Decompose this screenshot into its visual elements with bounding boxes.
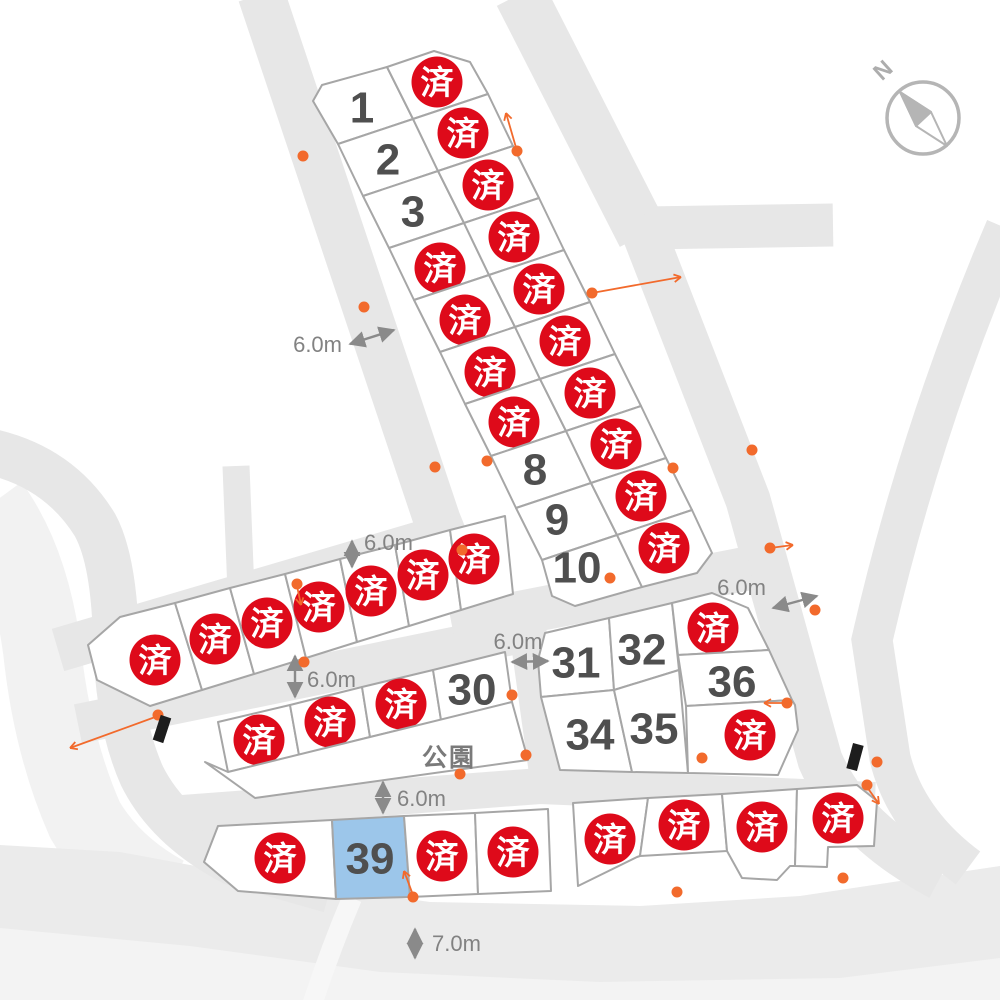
- sold-badge-label: 済: [600, 426, 634, 463]
- sold-badge-label: 済: [574, 375, 608, 412]
- dimension-label: 6.0m: [717, 575, 766, 600]
- sold-badge-label: 済: [549, 323, 583, 360]
- dimension-label: 6.0m: [364, 530, 413, 555]
- sold-badge-label: 済: [523, 271, 557, 308]
- sold-badge-label: 済: [498, 219, 532, 256]
- lot-number-label: 36: [708, 657, 757, 706]
- sold-badge-label: 済: [447, 115, 481, 152]
- sold-badge-label: 済: [243, 722, 277, 759]
- lot-number-label: 32: [618, 625, 667, 674]
- dimension-label: 6.0m: [397, 786, 446, 811]
- lot-number-label: 10: [553, 543, 602, 592]
- road-east-outer: [872, 228, 1000, 868]
- survey-point-dot: [359, 302, 370, 313]
- sold-badge-label: 済: [421, 64, 455, 101]
- compass-layer: N: [868, 55, 959, 154]
- survey-point-dot: [299, 657, 310, 668]
- sold-badge-label: 済: [426, 838, 460, 875]
- survey-point-dot: [298, 151, 309, 162]
- dimension-label: 6.0m: [307, 667, 356, 692]
- sold-badge-label: 済: [497, 834, 531, 871]
- lot-sold-g3[interactable]: 済: [722, 789, 797, 880]
- lot-sold-f2[interactable]: 済: [404, 813, 478, 897]
- survey-point-dot: [455, 769, 466, 780]
- sold-badge-label: 済: [199, 621, 233, 658]
- sold-badge-label: 済: [449, 302, 483, 339]
- survey-point-dot: [672, 887, 683, 898]
- sold-badge-label: 済: [697, 610, 731, 647]
- lot-sold-c7[interactable]: 済: [449, 516, 514, 610]
- sold-badge-label: 済: [264, 840, 298, 877]
- survey-point-dot: [697, 753, 708, 764]
- road-stub: [236, 466, 241, 592]
- site-plan-map: 123済済済済8910済済済済済済済済済済済済済済済済済済済済30公園31323…: [0, 0, 1000, 1000]
- sold-badge-label: 済: [472, 167, 506, 204]
- survey-point-dot: [457, 545, 468, 556]
- survey-point-dot: [810, 605, 821, 616]
- survey-point-dot: [605, 573, 616, 584]
- park-label: 公園: [422, 744, 476, 772]
- sold-badge-label: 済: [474, 354, 508, 391]
- sold-badge-label: 済: [498, 404, 532, 441]
- survey-point-dot: [872, 757, 883, 768]
- sold-badge-label: 済: [822, 800, 856, 837]
- dimension-label: 6.0m: [494, 629, 543, 654]
- lot-sold-f3[interactable]: 済: [475, 809, 551, 894]
- sold-badge-label: 済: [385, 686, 419, 723]
- dimension-arrow: [512, 661, 548, 662]
- lot-number-label: 9: [545, 495, 569, 544]
- lot-number-label: 1: [350, 83, 374, 132]
- lot-sold-g1[interactable]: 済: [573, 798, 648, 886]
- boundary-marker: [846, 743, 863, 771]
- road-branch-east: [645, 225, 833, 228]
- sold-badge-label: 済: [746, 809, 780, 846]
- survey-point-dot: [521, 750, 532, 761]
- sold-badge-label: 済: [668, 807, 702, 844]
- dimension-label: 7.0m: [432, 931, 481, 956]
- sold-badge-label: 済: [251, 605, 285, 642]
- survey-point-dot: [747, 445, 758, 456]
- lot-sold-g4[interactable]: 済: [795, 785, 877, 867]
- lot-number-label: 8: [523, 445, 547, 494]
- dimension-label: 6.0m: [293, 332, 342, 357]
- sold-badge-label: 済: [625, 478, 659, 515]
- survey-point-dot: [430, 462, 441, 473]
- survey-point-dot: [862, 780, 873, 791]
- lot-number-label: 35: [630, 704, 679, 753]
- survey-point-dot: [507, 690, 518, 701]
- lot-39[interactable]: 39: [332, 816, 410, 899]
- compass-north-label: N: [868, 55, 898, 85]
- survey-point-dot: [482, 456, 493, 467]
- sold-badge-label: 済: [314, 704, 348, 741]
- lot-31[interactable]: 31: [538, 618, 614, 697]
- sold-badge-label: 済: [424, 250, 458, 287]
- lot-number-label: 31: [552, 638, 601, 687]
- sold-badge-label: 済: [648, 530, 682, 567]
- sold-badge-label: 済: [407, 557, 441, 594]
- lot-number-label: 2: [376, 135, 400, 184]
- sold-badge-label: 済: [139, 642, 173, 679]
- survey-point-dot: [668, 463, 679, 474]
- lot-number-label: 39: [346, 834, 395, 883]
- lot-sold-e2[interactable]: 済: [686, 700, 798, 775]
- lot-number-label: 3: [401, 187, 425, 236]
- sold-badge-label: 済: [303, 589, 337, 626]
- site-plan-stage: 123済済済済8910済済済済済済済済済済済済済済済済済済済済30公園31323…: [0, 0, 1000, 1000]
- survey-point-dot: [838, 873, 849, 884]
- sold-badge-label: 済: [734, 717, 768, 754]
- sold-badge-label: 済: [594, 821, 628, 858]
- sold-badge-label: 済: [355, 573, 389, 610]
- lot-sold-g2[interactable]: 済: [640, 794, 727, 856]
- lot-number-label: 34: [566, 710, 615, 759]
